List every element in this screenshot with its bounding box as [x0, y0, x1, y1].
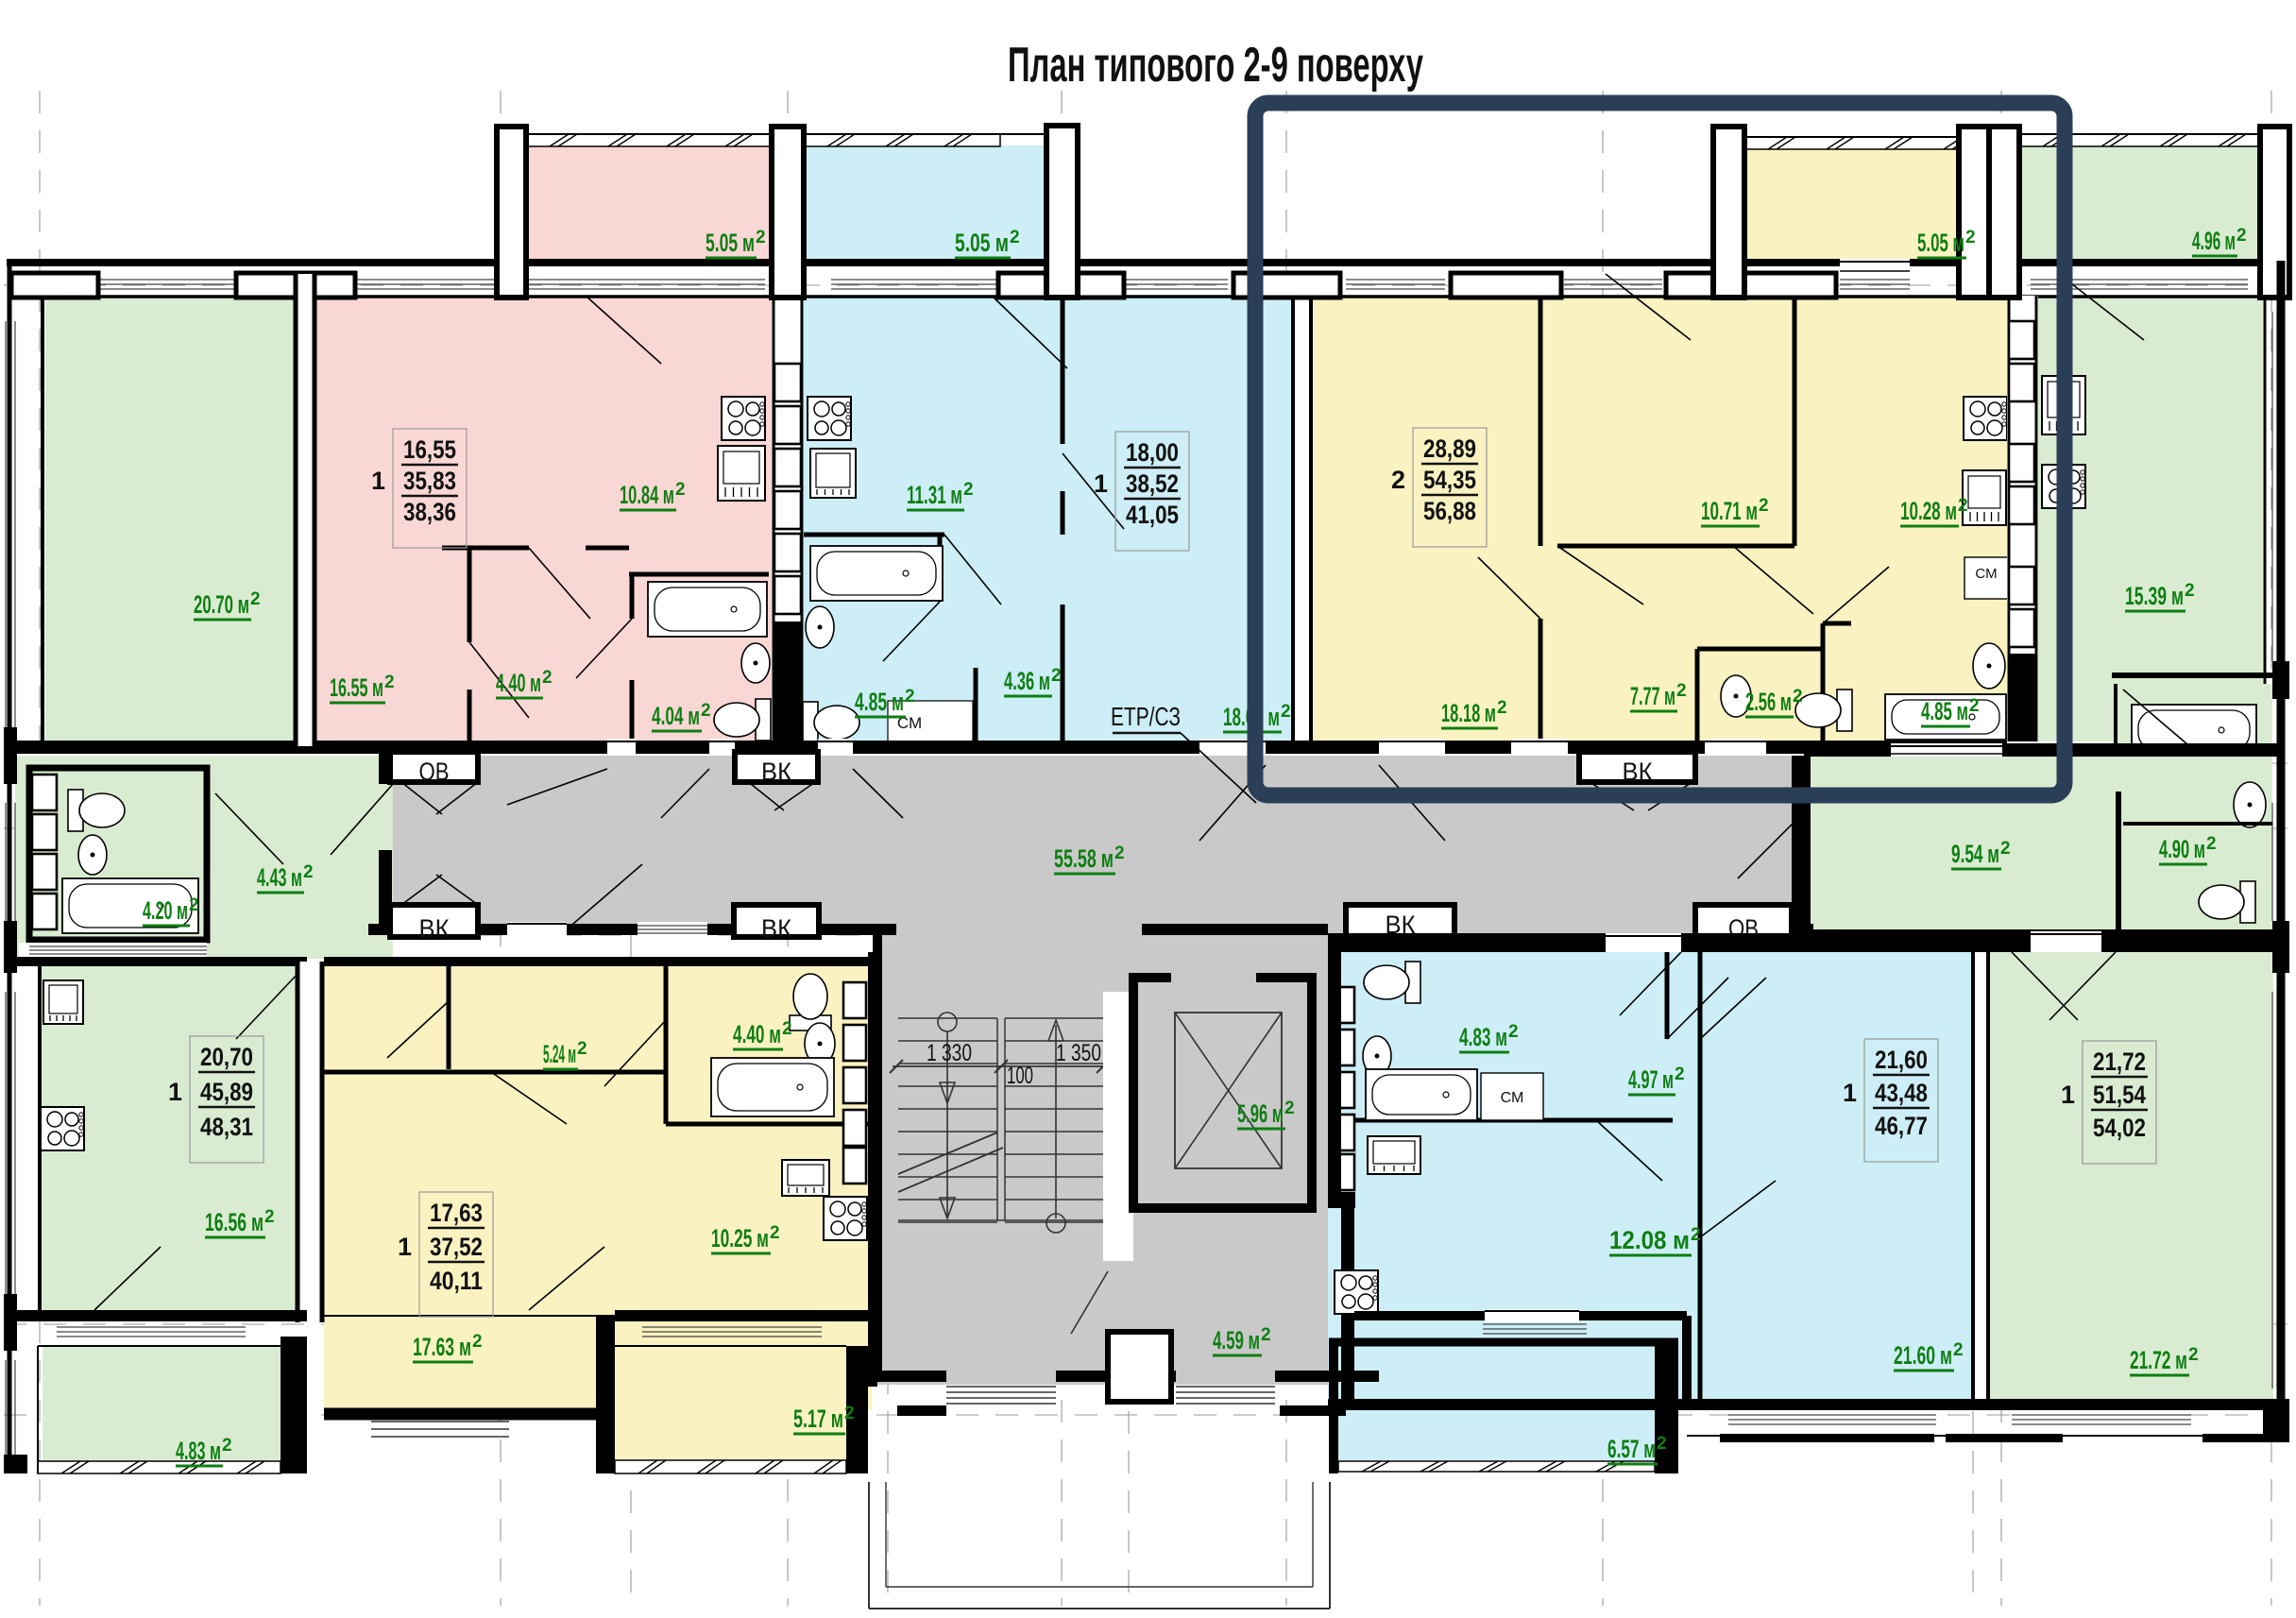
svg-text:1 350: 1 350 — [1056, 1040, 1101, 1066]
svg-text:28,89: 28,89 — [1423, 434, 1476, 463]
svg-text:4.85 м: 4.85 м — [1921, 697, 1968, 725]
svg-text:СМ: СМ — [1501, 1090, 1524, 1106]
svg-text:2: 2 — [264, 1207, 275, 1227]
svg-text:2: 2 — [770, 1223, 780, 1243]
svg-text:2: 2 — [1793, 687, 1803, 707]
svg-text:5.96 м: 5.96 м — [1237, 1099, 1284, 1128]
svg-text:2: 2 — [675, 480, 686, 500]
svg-text:21.60 м: 21.60 м — [1894, 1341, 1952, 1370]
svg-text:20.70 м: 20.70 м — [194, 590, 249, 619]
svg-text:46,77: 46,77 — [1875, 1112, 1928, 1140]
svg-text:1: 1 — [168, 1078, 182, 1106]
svg-text:51,54: 51,54 — [2093, 1081, 2146, 1109]
svg-text:4.97 м: 4.97 м — [1628, 1065, 1674, 1094]
svg-text:43,48: 43,48 — [1875, 1079, 1928, 1107]
svg-text:2: 2 — [1114, 843, 1125, 863]
svg-text:1: 1 — [398, 1233, 412, 1261]
svg-text:48,31: 48,31 — [200, 1113, 253, 1141]
svg-text:2: 2 — [701, 701, 711, 721]
svg-text:План типового 2-9 поверху: План типового 2-9 поверху — [1008, 38, 1423, 93]
svg-text:2: 2 — [2000, 839, 2011, 859]
svg-text:ОВ: ОВ — [419, 758, 450, 786]
svg-text:2: 2 — [782, 1019, 792, 1039]
svg-text:15.39 м: 15.39 м — [2125, 582, 2184, 610]
svg-text:17,63: 17,63 — [430, 1199, 483, 1227]
svg-text:10.84 м: 10.84 м — [620, 481, 674, 509]
svg-text:2: 2 — [1261, 1325, 1271, 1345]
svg-text:11.31 м: 11.31 м — [907, 481, 962, 509]
svg-text:1: 1 — [2061, 1081, 2075, 1109]
svg-text:7.77 м: 7.77 м — [1630, 682, 1675, 710]
svg-text:2: 2 — [1691, 1225, 1701, 1245]
svg-text:16.55 м: 16.55 м — [330, 673, 383, 702]
svg-text:4.40 м: 4.40 м — [733, 1020, 781, 1048]
svg-text:4.04 м: 4.04 м — [652, 702, 700, 730]
svg-text:54,02: 54,02 — [2093, 1114, 2146, 1142]
svg-text:21,72: 21,72 — [2093, 1047, 2146, 1076]
svg-text:55.58 м: 55.58 м — [1054, 844, 1114, 873]
svg-text:2: 2 — [1391, 466, 1405, 494]
svg-text:21.72 м: 21.72 м — [2130, 1346, 2187, 1374]
svg-text:2: 2 — [1284, 1099, 1295, 1118]
svg-text:45,89: 45,89 — [200, 1078, 253, 1106]
svg-text:5.24 м: 5.24 м — [543, 1040, 576, 1068]
svg-text:4.85 м: 4.85 м — [855, 688, 904, 716]
svg-text:4.40 м: 4.40 м — [496, 669, 541, 697]
svg-text:10.71 м: 10.71 м — [1701, 497, 1758, 525]
svg-text:ВК: ВК — [761, 914, 791, 943]
svg-text:2: 2 — [1281, 702, 1291, 722]
svg-text:4.43 м: 4.43 м — [257, 863, 302, 892]
svg-text:2: 2 — [963, 480, 974, 500]
svg-text:2: 2 — [844, 1404, 855, 1423]
svg-text:2: 2 — [250, 589, 261, 609]
svg-text:1: 1 — [371, 467, 385, 495]
svg-text:9.54 м: 9.54 м — [1951, 840, 1999, 868]
svg-text:2: 2 — [384, 673, 395, 692]
svg-text:38,36: 38,36 — [403, 498, 456, 526]
svg-text:38,52: 38,52 — [1126, 469, 1179, 498]
svg-text:2: 2 — [1965, 228, 1976, 247]
svg-text:1: 1 — [1094, 469, 1108, 498]
svg-text:2: 2 — [2206, 834, 2217, 854]
svg-text:2: 2 — [1969, 696, 1980, 716]
svg-text:ЕТР/СЗ: ЕТР/СЗ — [1111, 702, 1181, 731]
svg-text:16,55: 16,55 — [403, 435, 456, 464]
svg-text:40,11: 40,11 — [430, 1267, 483, 1295]
svg-text:10.25 м: 10.25 м — [711, 1224, 769, 1252]
svg-text:2: 2 — [1675, 1064, 1685, 1084]
svg-text:18,00: 18,00 — [1126, 438, 1179, 467]
svg-text:6.57 м: 6.57 м — [1607, 1435, 1656, 1463]
svg-text:2: 2 — [303, 862, 314, 882]
svg-text:2: 2 — [1051, 666, 1062, 686]
svg-text:ВК: ВК — [761, 758, 791, 786]
svg-text:2: 2 — [542, 668, 553, 688]
svg-text:56,88: 56,88 — [1423, 497, 1476, 525]
svg-text:12.08 м: 12.08 м — [1609, 1226, 1690, 1254]
svg-text:2: 2 — [1676, 681, 1687, 701]
svg-text:СМ: СМ — [1975, 566, 1997, 582]
svg-text:2: 2 — [472, 1332, 483, 1352]
svg-text:100: 100 — [1007, 1063, 1033, 1089]
svg-text:2: 2 — [1953, 1340, 1964, 1360]
svg-text:2: 2 — [905, 687, 915, 707]
svg-text:4.90 м: 4.90 м — [2159, 835, 2205, 863]
svg-text:5.05 м: 5.05 м — [1917, 229, 1964, 257]
svg-text:2: 2 — [1010, 228, 1020, 247]
svg-text:2: 2 — [2236, 226, 2247, 246]
svg-text:2: 2 — [1657, 1434, 1667, 1454]
svg-text:10.28 м: 10.28 м — [1900, 497, 1957, 525]
svg-text:18.18 м: 18.18 м — [1441, 699, 1496, 727]
svg-text:2: 2 — [1958, 496, 1968, 516]
svg-text:2.56 м: 2.56 м — [1745, 688, 1792, 716]
svg-text:41,05: 41,05 — [1126, 501, 1179, 529]
svg-text:1: 1 — [1843, 1079, 1857, 1107]
svg-text:ВК: ВК — [1623, 758, 1653, 786]
svg-text:21,60: 21,60 — [1875, 1046, 1928, 1074]
svg-text:1 330: 1 330 — [927, 1040, 972, 1066]
svg-text:2: 2 — [1508, 1022, 1519, 1042]
svg-text:4.83 м: 4.83 м — [1459, 1023, 1507, 1051]
svg-text:4.36 м: 4.36 м — [1004, 667, 1050, 695]
svg-text:4.83 м: 4.83 м — [176, 1437, 221, 1465]
svg-text:4.20 м: 4.20 м — [143, 896, 188, 925]
svg-text:2: 2 — [2188, 1345, 2199, 1365]
svg-text:54,35: 54,35 — [1423, 466, 1476, 494]
svg-text:2: 2 — [189, 895, 199, 915]
svg-text:37,52: 37,52 — [430, 1233, 483, 1261]
svg-text:4.59 м: 4.59 м — [1213, 1326, 1260, 1354]
svg-text:2: 2 — [577, 1039, 587, 1059]
svg-text:2: 2 — [2185, 581, 2195, 601]
svg-text:5.05 м: 5.05 м — [955, 229, 1009, 257]
svg-text:5.17 м: 5.17 м — [793, 1405, 843, 1433]
svg-text:2: 2 — [1497, 698, 1507, 718]
svg-text:4.96 м: 4.96 м — [2192, 227, 2236, 255]
svg-text:2: 2 — [756, 228, 766, 247]
svg-text:2: 2 — [222, 1436, 232, 1456]
svg-text:35,83: 35,83 — [403, 467, 456, 495]
svg-text:2: 2 — [1759, 496, 1769, 516]
svg-text:20,70: 20,70 — [200, 1043, 253, 1071]
svg-text:16.56 м: 16.56 м — [205, 1208, 264, 1236]
svg-text:ВК: ВК — [419, 914, 450, 943]
svg-text:17.63 м: 17.63 м — [413, 1333, 471, 1361]
svg-text:5.05 м: 5.05 м — [706, 229, 755, 257]
